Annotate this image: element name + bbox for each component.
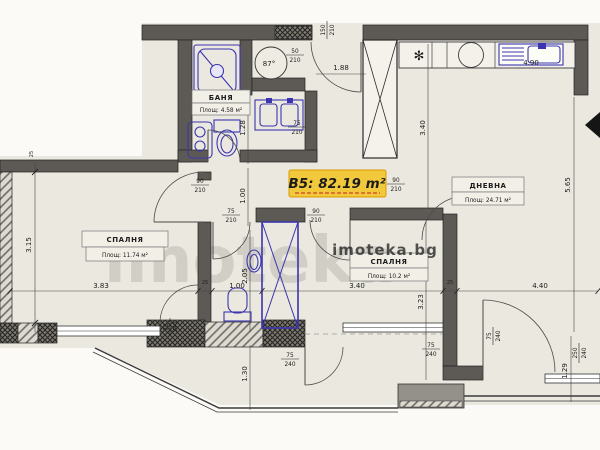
dim-3-15: 3.15 [25,237,33,253]
dim-2-05: 2.05 [241,268,249,284]
floor-plan-drawing: imoteka [0,0,600,450]
svg-text:50: 50 [291,49,299,55]
dim-1-29: 1.29 [561,363,569,379]
svg-text:240: 240 [582,347,588,358]
entrance-shaft [363,40,397,158]
svg-text:90: 90 [312,209,320,215]
room-label-bath: БАНЯ Площ: 4.58 м² [192,90,250,115]
svg-text:210: 210 [330,24,336,35]
dim-1-28: 1.28 [239,120,247,136]
dim-3-83: 3.83 [93,282,109,290]
svg-text:90: 90 [196,179,204,185]
svg-text:240: 240 [173,321,179,332]
boiler-circle: 87° [255,47,287,79]
fridge-star-icon: ✻ [414,49,425,64]
dim-1-88: 1.88 [333,64,349,72]
svg-text:210: 210 [390,187,401,193]
svg-text:210: 210 [194,188,205,194]
svg-text:250: 250 [573,347,579,358]
svg-text:75: 75 [487,332,493,340]
bedroom2-name: СПАЛНЯ [370,258,407,266]
floor-plan-image: imoteka [0,0,600,450]
room-label-bedroom1: СПАЛНЯ Площ: 11.74 м² [82,231,168,261]
dim-3-40-h: 3.40 [349,282,365,290]
bedroom1-area: Площ: 11.74 м² [102,252,148,259]
bedroom2-area: Площ: 10.2 м² [368,273,410,280]
unit-label: B5: 82.19 m² [288,170,386,197]
svg-text:75: 75 [286,353,294,359]
living-area: Площ: 24.71 м² [465,197,511,204]
bedroom1-window [57,326,160,336]
dim-1-00-v: 1.00 [239,188,247,204]
dim-5-65: 5.65 [564,177,572,193]
dim-wall-25-b: 25 [447,280,453,286]
living-name: ДНЕВНА [469,182,506,190]
svg-text:240: 240 [496,330,502,341]
svg-text:210: 210 [289,58,300,64]
balcony-parapet [398,384,464,408]
bedroom1-name: СПАЛНЯ [106,236,143,244]
boiler-diameter-label: 87° [263,60,275,68]
dim-3-40-v: 3.40 [419,120,427,136]
svg-text:75: 75 [293,121,301,127]
bedroom2-window [343,323,443,332]
svg-text:75: 75 [227,209,235,215]
svg-text:210: 210 [310,218,321,224]
dim-4-90: 4.90 [523,59,539,67]
svg-text:75: 75 [164,323,170,331]
room-label-living: ДНЕВНА Площ: 24.71 м² [452,177,524,205]
svg-text:210: 210 [225,218,236,224]
bath-name: БАНЯ [209,94,233,102]
kitchen-counter: ✻ [399,42,575,68]
svg-text:75: 75 [427,343,435,349]
svg-text:90: 90 [392,178,400,184]
svg-text:150: 150 [321,24,327,35]
bath-area: Площ: 4.58 м² [200,107,242,114]
dim-1-30: 1.30 [241,366,249,382]
svg-text:240: 240 [425,352,436,358]
dim-4-40: 4.40 [532,282,548,290]
dim-3-23: 3.23 [417,294,425,310]
living-window [545,374,600,383]
svg-text:240: 240 [284,362,295,368]
dim-wall-25-c: 25 [29,151,35,157]
unit-label-text: B5: 82.19 m² [288,176,385,192]
dim-wall-25-a: 25 [202,280,208,286]
watermark-text: imoteka.bg [332,241,438,259]
svg-text:210: 210 [291,130,302,136]
